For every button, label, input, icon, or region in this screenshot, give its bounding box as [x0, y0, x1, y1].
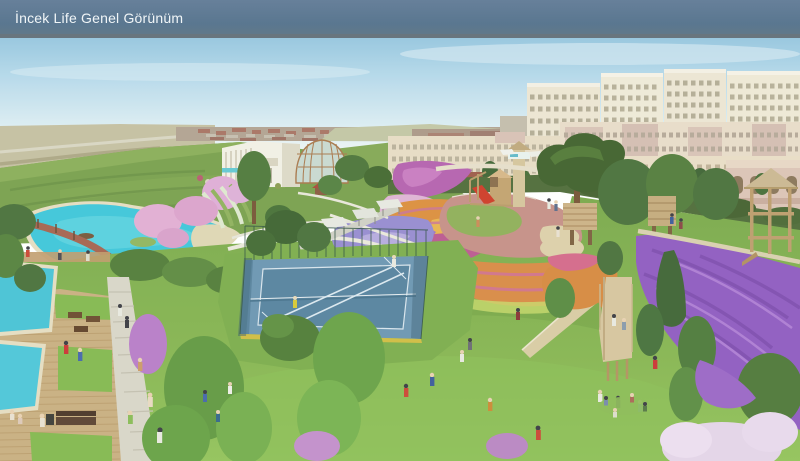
svg-text:İncek Life Genel Görünüm: İncek Life Genel Görünüm — [15, 9, 183, 26]
